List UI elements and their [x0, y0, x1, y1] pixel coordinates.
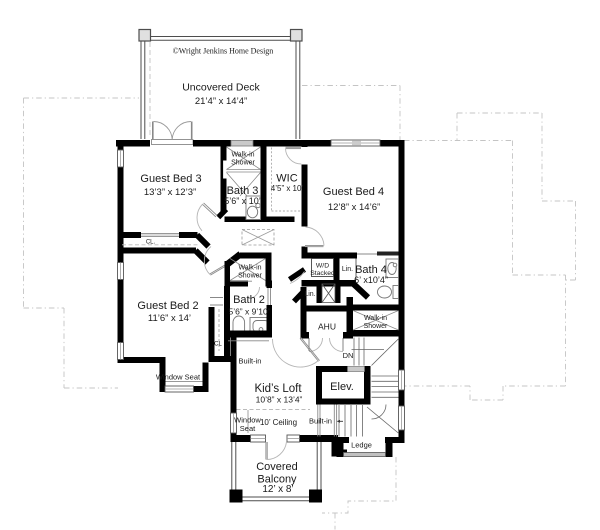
svg-text:Shower: Shower — [238, 273, 262, 280]
svg-text:AHU: AHU — [318, 322, 336, 332]
svg-text:Kid’s Loft: Kid’s Loft — [254, 383, 302, 395]
svg-text:Seat: Seat — [240, 424, 256, 433]
svg-text:13’3” x 12’3”: 13’3” x 12’3” — [144, 187, 196, 198]
svg-text:4’5” x 10’: 4’5” x 10’ — [271, 184, 304, 193]
svg-text:Shower: Shower — [364, 323, 388, 330]
svg-text:12’ x 8’: 12’ x 8’ — [262, 484, 293, 495]
svg-text:Covered: Covered — [256, 461, 298, 473]
svg-text:Walk-in: Walk-in — [231, 152, 254, 159]
svg-text:Walk-in: Walk-in — [364, 315, 387, 322]
svg-text:Bath 2: Bath 2 — [233, 294, 265, 306]
svg-text:Elev.: Elev. — [330, 381, 354, 393]
svg-text:Built-in: Built-in — [309, 417, 332, 426]
svg-text:Lin.: Lin. — [342, 266, 353, 273]
svg-text:21’4” x 14’4”: 21’4” x 14’4” — [195, 96, 247, 107]
svg-text:W/D: W/D — [316, 263, 329, 270]
svg-text:DN: DN — [343, 351, 354, 360]
svg-text:10’ Ceiling: 10’ Ceiling — [260, 418, 297, 427]
svg-text:WIC: WIC — [276, 173, 297, 185]
svg-text:Window Seat: Window Seat — [156, 373, 201, 382]
svg-text:Built-in: Built-in — [239, 357, 262, 366]
svg-text:Guest Bed 4: Guest Bed 4 — [323, 186, 384, 198]
svg-text:10’8” x 13’4”: 10’8” x 13’4” — [256, 395, 303, 405]
svg-text:5’6” x 9’10”: 5’6” x 9’10” — [228, 307, 270, 317]
svg-text:Uncovered Deck: Uncovered Deck — [182, 82, 260, 94]
svg-text:Lin.: Lin. — [304, 291, 315, 298]
svg-text:CL: CL — [214, 342, 222, 348]
svg-text:©Wright Jenkins Home Design: ©Wright Jenkins Home Design — [173, 47, 274, 56]
svg-text:11’6” x 14’: 11’6” x 14’ — [148, 313, 191, 324]
svg-text:Walk-in: Walk-in — [238, 265, 261, 272]
svg-text:Shower: Shower — [231, 160, 255, 167]
svg-text:Ledge: Ledge — [351, 441, 372, 450]
svg-text:Guest Bed 3: Guest Bed 3 — [140, 173, 201, 185]
svg-text:CL.: CL. — [146, 240, 156, 246]
svg-text:12’8” x 14’6”: 12’8” x 14’6” — [328, 202, 380, 213]
svg-text:5’6” x 10’: 5’6” x 10’ — [224, 196, 261, 206]
svg-text:Stacked: Stacked — [310, 270, 335, 277]
svg-text:Guest Bed 2: Guest Bed 2 — [137, 300, 198, 312]
svg-text:6’ x10’4”: 6’ x10’4” — [354, 275, 388, 285]
